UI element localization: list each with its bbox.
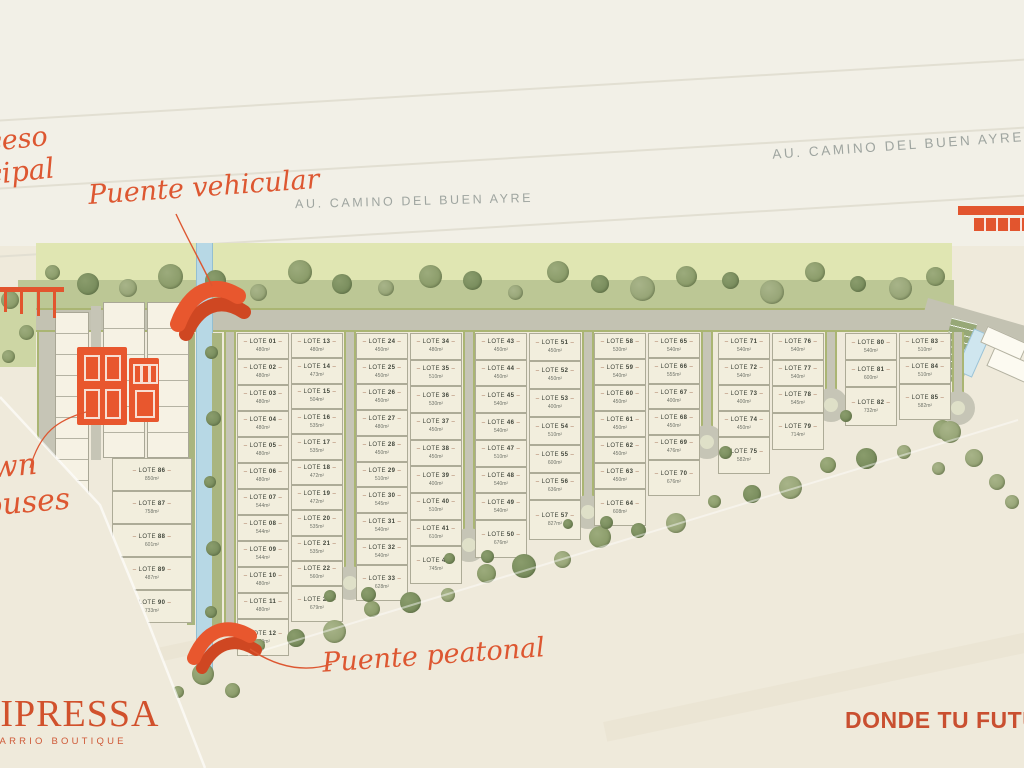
entrance-gate-post: [53, 292, 56, 318]
site-plan-page: { "branding": { "logo": "CIPRESSA", "log…: [0, 0, 1024, 768]
overpass-icon: [958, 206, 1024, 215]
town-houses-label-line1: town: [0, 447, 39, 488]
entrance-gate-post: [4, 292, 7, 312]
vehicular-bridge-icon: [178, 289, 244, 334]
entrance-gate-post: [37, 292, 40, 316]
overpass-deck-icon: [974, 218, 1024, 231]
logo: CIPRESSA: [0, 692, 159, 736]
leader-line-pedestrian: [250, 649, 332, 668]
south-boundary-line: [248, 420, 1018, 655]
logo-subtitle: BARRIO BOUTIQUE: [0, 736, 127, 747]
tagline: DONDE TU FUTURO: [845, 707, 1024, 734]
pedestrian-bridge-icon: [194, 629, 256, 668]
entrance-gate-post: [20, 292, 23, 314]
leader-line-vehicular: [176, 214, 212, 286]
